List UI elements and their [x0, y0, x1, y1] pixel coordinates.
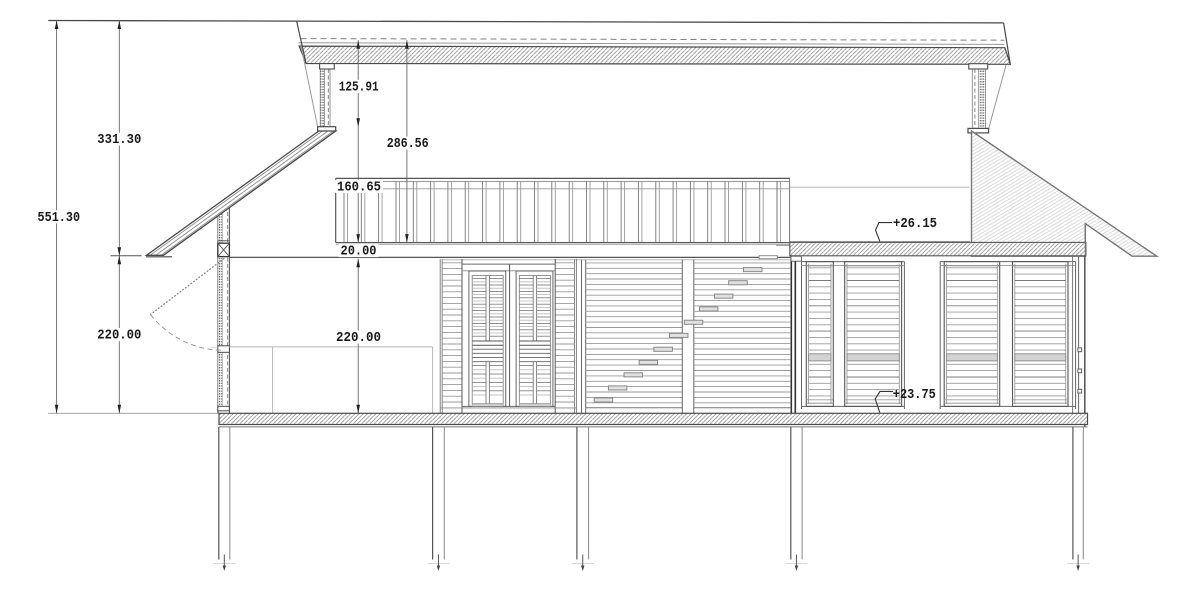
svg-text:220.00: 220.00 [336, 330, 381, 346]
svg-text:551.30: 551.30 [38, 210, 81, 226]
svg-text:331.30: 331.30 [97, 132, 141, 148]
svg-text:20.00: 20.00 [341, 244, 377, 260]
svg-text:286.56: 286.56 [387, 136, 429, 152]
svg-text:160.65: 160.65 [337, 179, 381, 195]
svg-text:+26.15: +26.15 [893, 216, 937, 232]
svg-text:+23.75: +23.75 [893, 387, 936, 403]
svg-text:125.91: 125.91 [339, 79, 379, 95]
svg-text:220.00: 220.00 [97, 328, 141, 344]
